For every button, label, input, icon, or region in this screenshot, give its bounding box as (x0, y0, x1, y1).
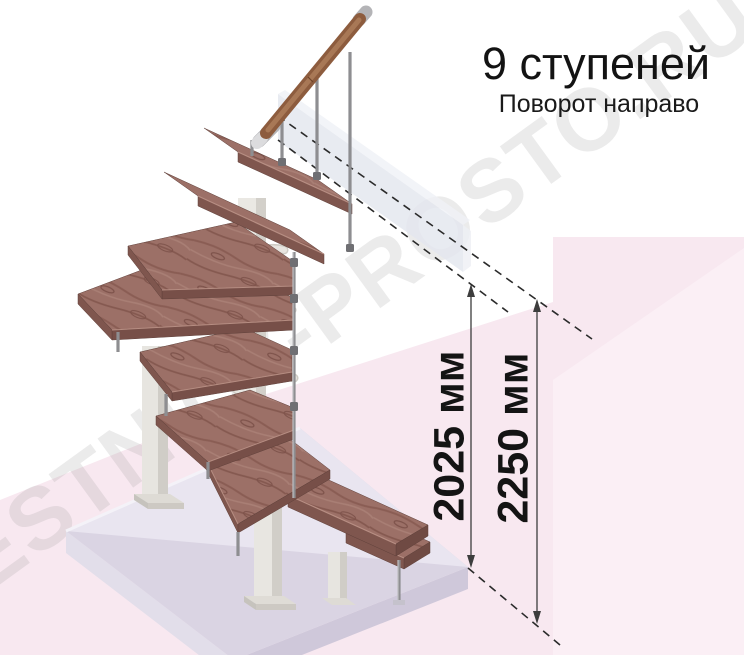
staircase-illustration: LESTNICY-PROSTO.RU 2025 мм 2250 мм (0, 0, 744, 655)
staircase-diagram-page: LESTNICY-PROSTO.RU 2025 мм 2250 мм (0, 0, 744, 655)
dimension-label-2250: 2250 мм (489, 352, 537, 523)
page-title: 9 ступеней (482, 38, 710, 89)
page-subtitle: Поворот направо (499, 90, 699, 118)
dimension-label-2025: 2025 мм (425, 350, 473, 521)
